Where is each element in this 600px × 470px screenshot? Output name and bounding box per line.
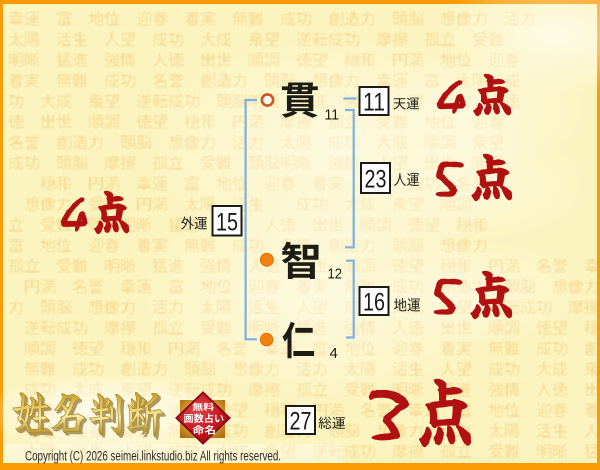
svg-text:23: 23 bbox=[365, 166, 387, 194]
svg-text:27: 27 bbox=[290, 408, 312, 436]
svg-text:11: 11 bbox=[325, 107, 340, 124]
svg-text:4: 4 bbox=[330, 345, 338, 362]
svg-text:15: 15 bbox=[216, 208, 238, 236]
svg-text:Copyright (C) 2026 seimei.link: Copyright (C) 2026 seimei.linkstudio.biz… bbox=[25, 449, 281, 464]
svg-text:11: 11 bbox=[363, 89, 385, 117]
svg-text:12: 12 bbox=[328, 266, 343, 283]
svg-text:16: 16 bbox=[363, 289, 385, 317]
